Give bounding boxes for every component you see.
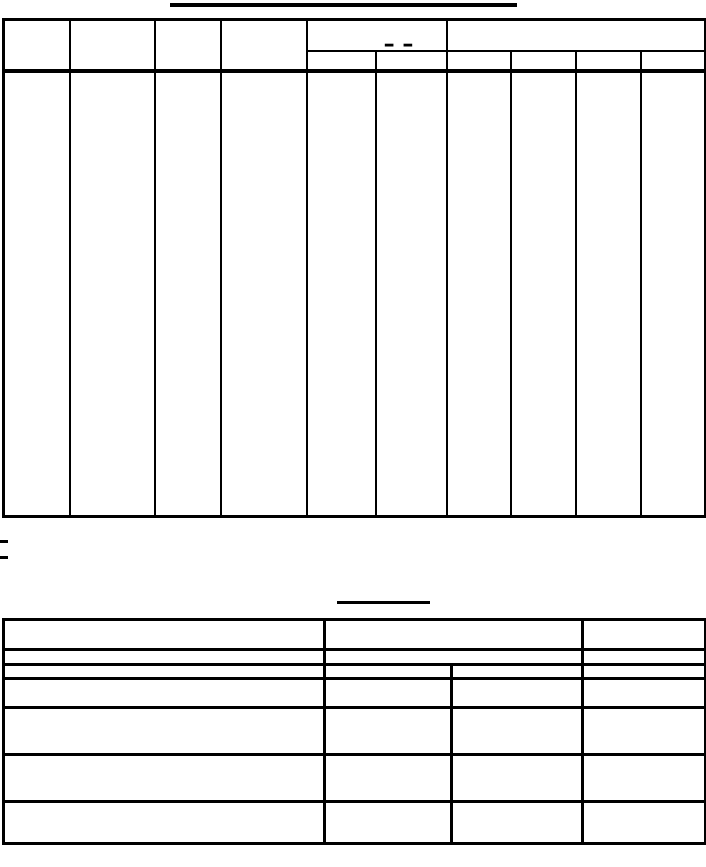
lower-table-row xyxy=(4,665,706,679)
lower-table-cell xyxy=(4,708,325,755)
upper-table-header-cell xyxy=(221,20,307,71)
lower-table-cell xyxy=(325,755,452,802)
upper-table-body-cell xyxy=(447,71,511,517)
upper-table-header-cell xyxy=(4,20,70,71)
upper-table-body-cell xyxy=(641,71,706,517)
lower-table-cell xyxy=(4,665,325,679)
upper-table-merged-header-right xyxy=(447,20,706,51)
lower-table-header-row xyxy=(4,620,706,650)
lower-table-cell xyxy=(583,802,706,844)
lower-table-cell xyxy=(325,708,452,755)
upper-table-body-cell xyxy=(576,71,641,517)
upper-table-body-cell xyxy=(221,71,307,517)
lower-table-cell xyxy=(4,802,325,844)
lower-table-cell xyxy=(4,755,325,802)
main-title-underline xyxy=(170,3,517,7)
header-dashes: – – xyxy=(384,32,414,57)
lower-table-cell xyxy=(4,650,325,665)
lower-table-row xyxy=(4,679,706,708)
lower-table-row xyxy=(4,802,706,844)
lower-table-cell xyxy=(583,708,706,755)
lower-table-cell xyxy=(452,802,583,844)
lower-table-row xyxy=(4,650,706,665)
lower-table-merged-cell xyxy=(325,650,583,665)
upper-table-subheader-cell xyxy=(307,51,376,71)
upper-table-header-cell xyxy=(155,20,221,71)
upper-table-body-cell xyxy=(376,71,447,517)
lower-table-cell xyxy=(583,665,706,679)
lower-table-cell xyxy=(4,620,325,650)
lower-table-cell xyxy=(325,802,452,844)
lower-table-cell xyxy=(452,679,583,708)
lower-table-cell xyxy=(452,708,583,755)
upper-table-body-cell xyxy=(155,71,221,517)
upper-table-body-row xyxy=(4,71,706,517)
upper-table-subheader-cell xyxy=(641,51,706,71)
upper-table-header-cell xyxy=(70,20,155,71)
upper-table-merged-header-left: – – xyxy=(307,20,447,51)
upper-table-header-row-1: – – xyxy=(4,20,706,51)
upper-table-subheader-cell xyxy=(511,51,576,71)
upper-table-subheader-cell xyxy=(576,51,641,71)
lower-table-cell xyxy=(325,665,452,679)
upper-table-body-cell xyxy=(307,71,376,517)
lower-table-row xyxy=(4,755,706,802)
lower-table xyxy=(2,618,706,845)
margin-mark xyxy=(0,540,8,543)
scanned-form-page: – – xyxy=(0,0,706,867)
lower-table-merged-cell xyxy=(325,620,583,650)
lower-table-cell xyxy=(583,679,706,708)
upper-table-body-cell xyxy=(511,71,576,517)
lower-table-cell xyxy=(325,679,452,708)
margin-mark xyxy=(0,556,8,559)
lower-table-cell xyxy=(583,620,706,650)
upper-table-body-cell xyxy=(4,71,70,517)
lower-table-cell xyxy=(452,665,583,679)
upper-table: – – xyxy=(2,18,706,518)
lower-title-underline xyxy=(337,601,430,604)
upper-table-body-cell xyxy=(70,71,155,517)
upper-table-subheader-cell xyxy=(447,51,511,71)
lower-table-cell xyxy=(452,755,583,802)
lower-table-cell xyxy=(583,755,706,802)
lower-table-cell xyxy=(4,679,325,708)
lower-table-row xyxy=(4,708,706,755)
lower-table-cell xyxy=(583,650,706,665)
